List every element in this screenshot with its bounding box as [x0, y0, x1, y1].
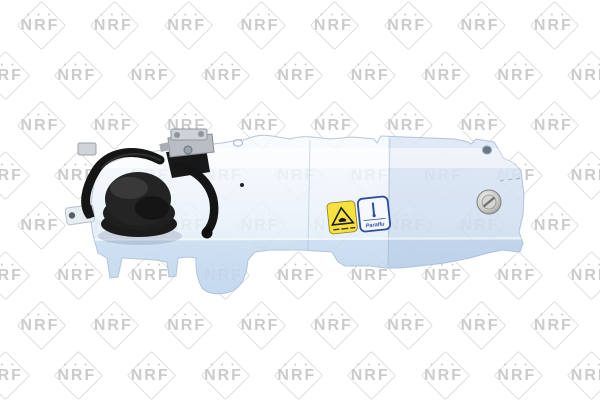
- product-photo-stage: • • •NRF• • •NRF• • •NRF• • •NRF• • •NRF…: [0, 0, 600, 400]
- clamp-screw-right: [198, 131, 204, 137]
- warning-label: [327, 201, 358, 235]
- cap-shading: [135, 196, 169, 220]
- hose-end-connector: [202, 228, 213, 239]
- coolant-spec-label: Paraflu: [357, 196, 390, 232]
- bracket-left-tab: [78, 143, 96, 155]
- expansion-tank-photo: Paraflu: [0, 0, 600, 400]
- vent-pinhole: [240, 183, 244, 187]
- bracket-bolt: [184, 146, 192, 154]
- mounting-hole: [483, 146, 492, 154]
- drain-plug: [477, 190, 501, 214]
- dipstick-icon: [373, 203, 374, 215]
- clamp-screw-left: [174, 132, 180, 138]
- cap-highlight: [110, 177, 148, 199]
